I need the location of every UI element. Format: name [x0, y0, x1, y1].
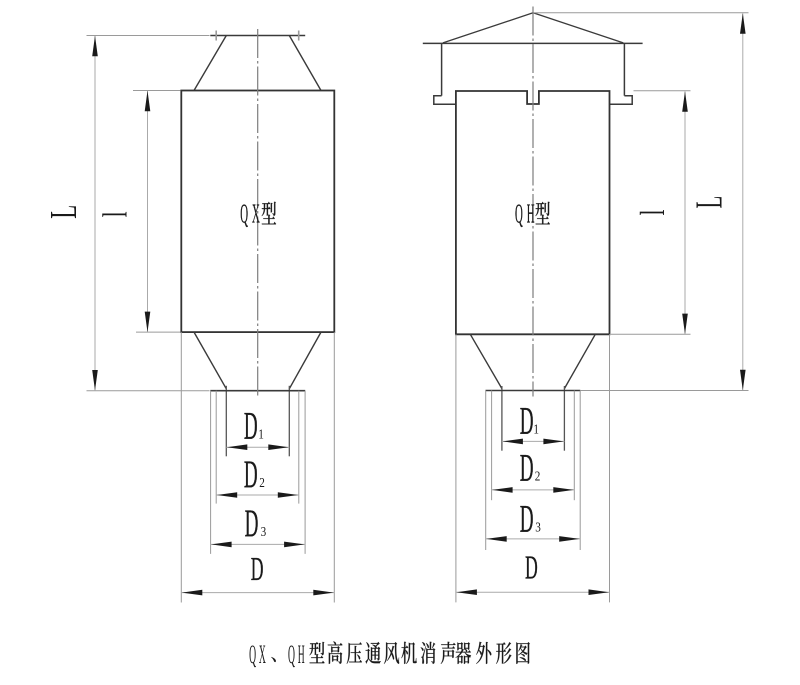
svg-text:3: 3: [261, 524, 267, 539]
svg-text:3: 3: [535, 519, 541, 534]
svg-text:2: 2: [535, 469, 541, 484]
svg-text:2: 2: [259, 475, 265, 490]
svg-text:1: 1: [258, 426, 264, 441]
svg-text:D: D: [520, 497, 534, 540]
svg-text:D: D: [525, 548, 538, 586]
svg-text:D: D: [520, 446, 534, 489]
svg-text:Q: Q: [288, 642, 295, 670]
svg-text:L: L: [688, 196, 730, 209]
svg-text:X: X: [259, 642, 266, 670]
svg-text:D: D: [520, 399, 534, 442]
svg-text:H: H: [527, 200, 535, 229]
svg-text:Q: Q: [240, 200, 248, 229]
svg-text:D: D: [245, 502, 259, 545]
svg-text:Q: Q: [249, 642, 256, 670]
svg-text:D: D: [251, 550, 264, 588]
svg-text:D: D: [244, 453, 258, 496]
svg-text:H: H: [298, 642, 305, 670]
svg-text:X: X: [252, 200, 260, 229]
svg-text:1: 1: [533, 421, 539, 436]
svg-text:L: L: [42, 205, 84, 219]
svg-text:l: l: [634, 210, 673, 216]
svg-text:D: D: [244, 404, 258, 447]
svg-text:Q: Q: [515, 200, 523, 229]
svg-text:l: l: [96, 211, 135, 217]
